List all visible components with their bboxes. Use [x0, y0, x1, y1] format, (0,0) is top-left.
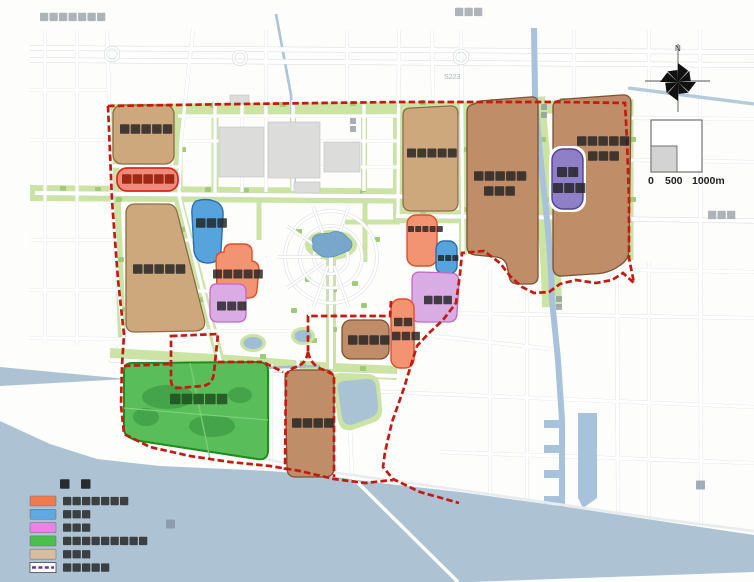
- svg-text:500: 500: [665, 175, 683, 187]
- svg-text:0: 0: [648, 175, 654, 187]
- svg-text:1000m: 1000m: [692, 175, 725, 187]
- svg-text:N: N: [675, 44, 681, 53]
- svg-text:S223: S223: [444, 74, 460, 81]
